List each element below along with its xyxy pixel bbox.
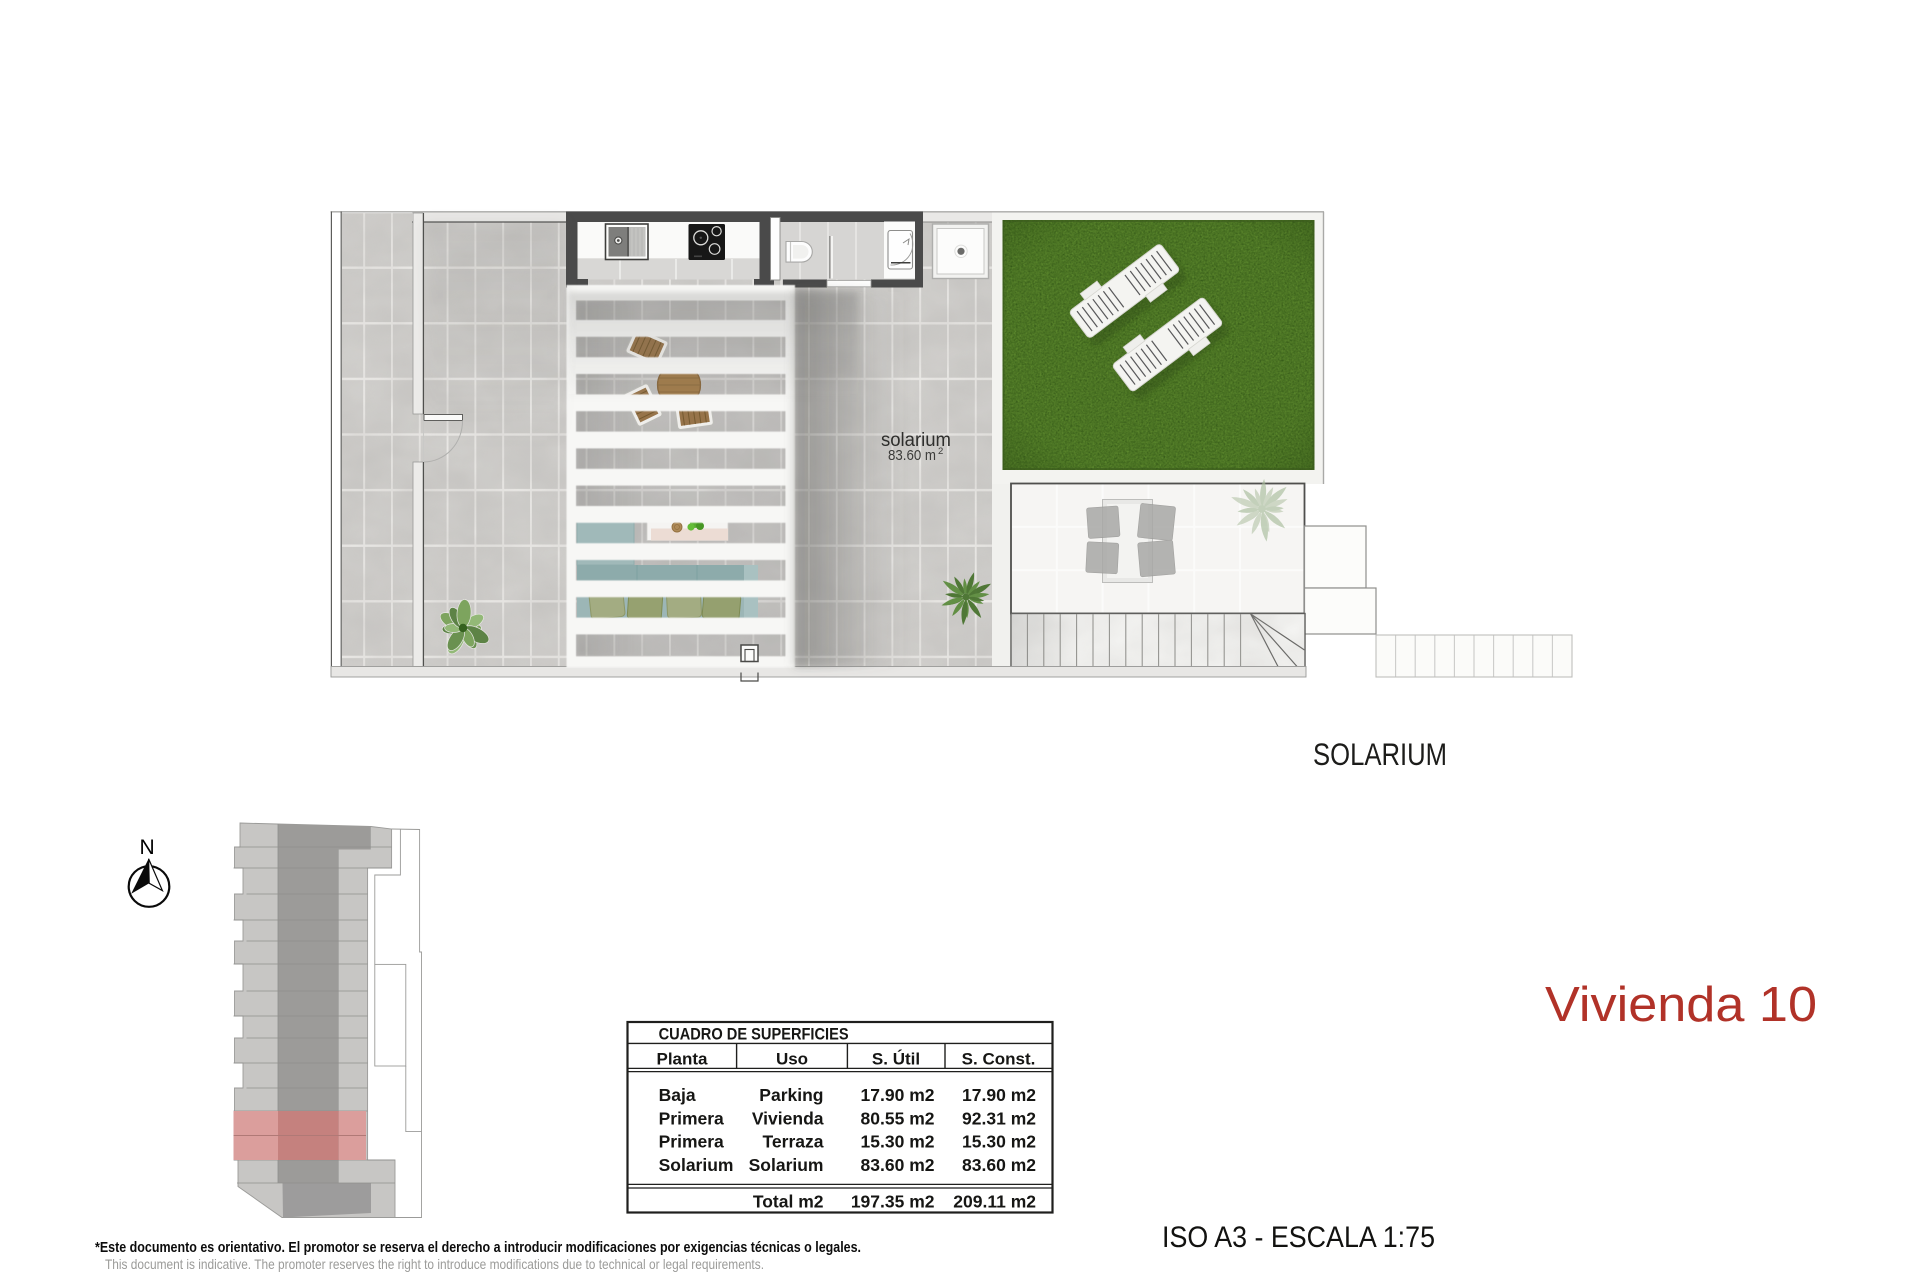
svg-text:SOLARIUM: SOLARIUM xyxy=(1313,736,1447,772)
svg-text:15.30 m2: 15.30 m2 xyxy=(861,1132,935,1152)
svg-text:83.60 m2: 83.60 m2 xyxy=(861,1155,935,1175)
svg-text:Uso: Uso xyxy=(776,1050,808,1069)
svg-text:Total m2: Total m2 xyxy=(753,1192,824,1212)
svg-text:Primera: Primera xyxy=(659,1132,724,1152)
svg-text:N: N xyxy=(140,836,155,859)
svg-text:209.11 m2: 209.11 m2 xyxy=(953,1192,1036,1212)
svg-text:Vivienda: Vivienda xyxy=(752,1108,824,1128)
svg-text:2: 2 xyxy=(938,446,943,457)
svg-text:17.90 m2: 17.90 m2 xyxy=(861,1085,935,1105)
svg-text:17.90 m2: 17.90 m2 xyxy=(962,1085,1036,1105)
svg-text:*Este documento es orientativo: *Este documento es orientativo. El promo… xyxy=(95,1239,861,1256)
svg-text:92.31 m2: 92.31 m2 xyxy=(962,1108,1036,1128)
svg-text:Solarium: Solarium xyxy=(659,1155,734,1175)
svg-text:Planta: Planta xyxy=(656,1050,708,1069)
svg-text:S. Útil: S. Útil xyxy=(872,1050,920,1069)
svg-text:Terraza: Terraza xyxy=(763,1132,824,1152)
svg-text:197.35 m2: 197.35 m2 xyxy=(851,1192,935,1212)
svg-text:83.60 m2: 83.60 m2 xyxy=(962,1155,1036,1175)
svg-text:80.55 m2: 80.55 m2 xyxy=(861,1108,935,1128)
svg-text:Parking: Parking xyxy=(759,1085,823,1105)
svg-text:Baja: Baja xyxy=(659,1085,696,1105)
svg-text:15.30 m2: 15.30 m2 xyxy=(962,1132,1036,1152)
svg-text:Primera: Primera xyxy=(659,1108,724,1128)
svg-text:S. Const.: S. Const. xyxy=(962,1050,1036,1069)
svg-text:83.60 m: 83.60 m xyxy=(888,447,936,464)
svg-text:This document is indicative. T: This document is indicative. The promote… xyxy=(105,1256,764,1272)
svg-text:ISO A3 - ESCALA 1:75: ISO A3 - ESCALA 1:75 xyxy=(1162,1221,1435,1254)
svg-text:CUADRO DE SUPERFICIES: CUADRO DE SUPERFICIES xyxy=(659,1025,849,1044)
svg-text:Solarium: Solarium xyxy=(749,1155,824,1175)
svg-text:Vivienda 10: Vivienda 10 xyxy=(1545,978,1817,1032)
